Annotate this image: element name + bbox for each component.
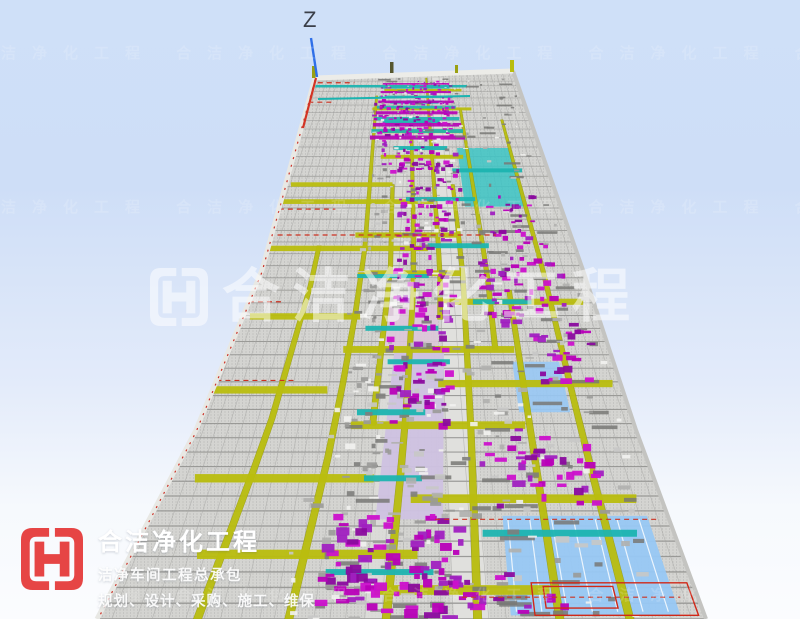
cad-screenshot-root: Z 合洁净化工程 合洁净化工程 合洁净化工程 合洁净化工程 合洁净化工程 合洁净… xyxy=(0,0,800,619)
roof-post-mid xyxy=(455,65,458,73)
building-model xyxy=(0,0,800,619)
brand-tagline: 规划、设计、采购、施工、维保 xyxy=(98,590,315,611)
brand-logo-icon xyxy=(21,528,83,590)
brand-text-block: 合洁净化工程 洁净车间工程总承包 规划、设计、采购、施工、维保 xyxy=(98,528,315,611)
model-viewport[interactable]: Z xyxy=(0,0,800,619)
brand-subtitle: 洁净车间工程总承包 xyxy=(98,564,315,585)
brand-title: 合洁净化工程 xyxy=(98,528,315,558)
brand-logo-block: 合洁净化工程 洁净车间工程总承包 规划、设计、采购、施工、维保 xyxy=(21,528,315,611)
roof-figure xyxy=(390,62,394,73)
z-axis-label: Z xyxy=(303,7,316,32)
roof-post-right xyxy=(510,60,514,72)
